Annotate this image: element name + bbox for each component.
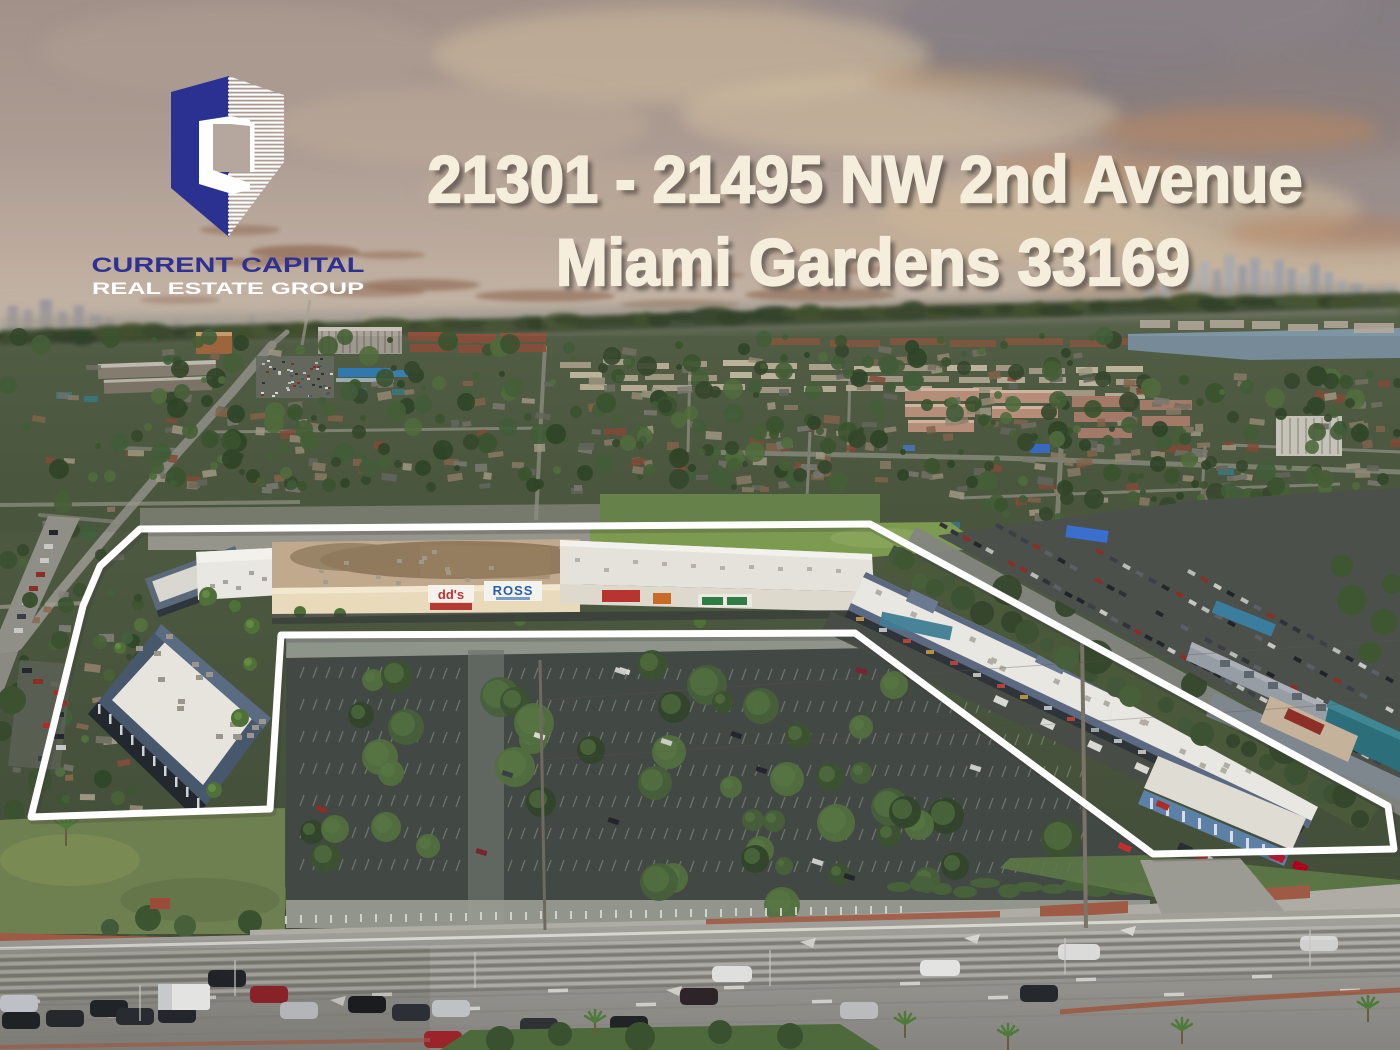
svg-text:CURRENT CAPITAL: CURRENT CAPITAL xyxy=(92,254,365,277)
svg-text:dd's: dd's xyxy=(438,587,464,602)
svg-text:21301 - 21495 NW 2nd Avenue: 21301 - 21495 NW 2nd Avenue xyxy=(428,142,1303,216)
svg-text:ROSS: ROSS xyxy=(493,583,534,598)
svg-text:REAL ESTATE GROUP: REAL ESTATE GROUP xyxy=(92,280,364,298)
svg-text:Miami Gardens 33169: Miami Gardens 33169 xyxy=(556,225,1190,299)
